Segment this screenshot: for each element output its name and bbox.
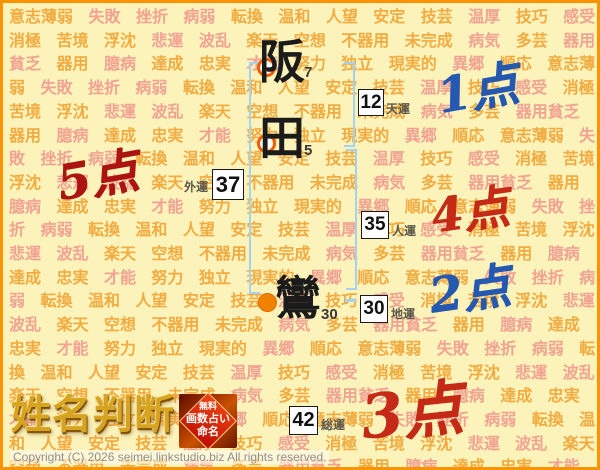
gaiun-score: 5点 [53, 146, 142, 207]
souun-score: 3点 [358, 378, 465, 448]
given-char-stroke-count: 30 [321, 306, 338, 323]
tenun-score: 1点 [433, 59, 522, 120]
seal-line-free: 無料 [179, 400, 237, 413]
tenun-bracket [344, 62, 355, 147]
seal-text: 無料 画数占い 命名 [179, 400, 237, 439]
seimei-handan-result-page: 意志薄弱 失敗 挫折 病弱 転換 温和 人望 安定 技芸 温厚 技巧 感受 消極… [0, 0, 600, 470]
gaiun-bracket [249, 62, 260, 294]
souun-value-box: 42 [289, 406, 318, 435]
gaiun-label: 外運 [184, 178, 208, 195]
jinun-label: 人運 [392, 222, 416, 239]
tenun-label: 天運 [386, 100, 410, 117]
chiun-connector-line [345, 299, 356, 302]
seal-line-kakusuuranai: 画数占い [179, 413, 237, 426]
site-logo[interactable]: 姓名判断 [11, 395, 175, 435]
surname-char1-stroke-count: 7 [304, 64, 312, 81]
surname-char1: 阪 [259, 39, 305, 85]
surname-char2-stroke-count: 5 [304, 142, 312, 159]
jinun-score: 4点 [428, 183, 512, 239]
gaiun-value-box: 37 [212, 169, 244, 200]
jinun-value-box: 35 [361, 211, 389, 239]
chiun-value-box: 30 [360, 295, 388, 323]
jinun-bracket [346, 149, 357, 290]
tenun-value-box: 12 [358, 89, 384, 116]
given-char: 鸞 [275, 275, 321, 321]
free-naming-seal-badge[interactable]: 無料 画数占い 命名 [179, 394, 237, 448]
chiun-score: 2点 [426, 262, 513, 321]
seal-line-meimei: 命名 [179, 426, 237, 439]
copyright-text: Copyright (C) 2026 seimei.linkstudio.biz… [10, 450, 329, 464]
souun-label: 総運 [321, 416, 345, 433]
chiun-label: 地運 [391, 305, 415, 322]
surname-char2: 田 [259, 115, 305, 161]
